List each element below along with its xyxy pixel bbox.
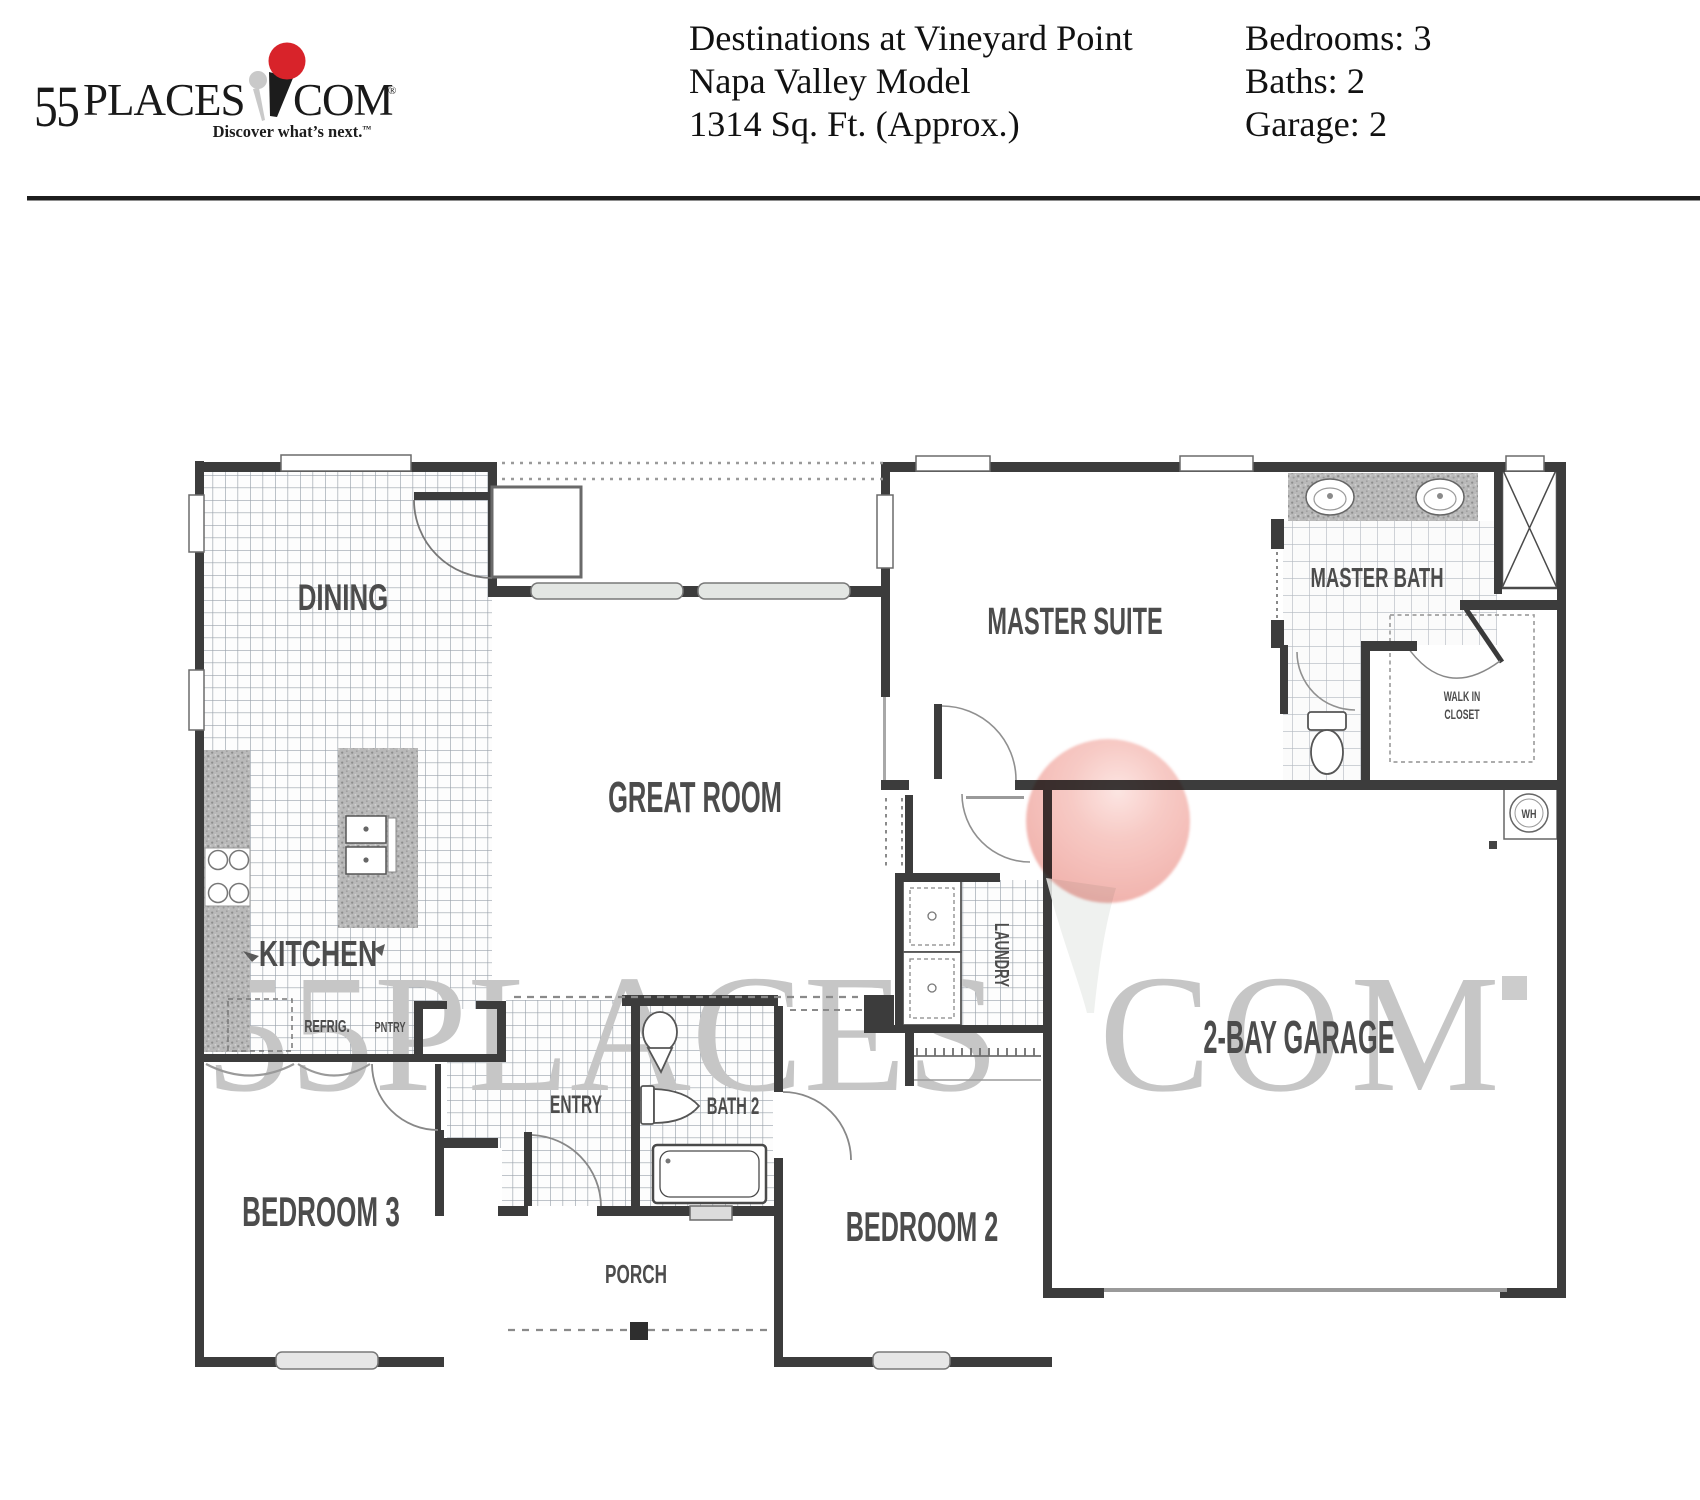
svg-text:Baths: 2: Baths: 2 <box>1245 61 1365 101</box>
svg-text:REFRIG.: REFRIG. <box>304 1016 349 1036</box>
svg-text:Destinations at Vineyard Point: Destinations at Vineyard Point <box>689 18 1133 58</box>
svg-text:ENTRY: ENTRY <box>550 1091 602 1119</box>
svg-text:COM: COM <box>293 75 393 125</box>
svg-text:MASTER BATH: MASTER BATH <box>1310 563 1443 594</box>
svg-text:KITCHEN: KITCHEN <box>259 933 377 974</box>
svg-text:GREAT ROOM: GREAT ROOM <box>608 772 782 822</box>
svg-text:PLACES: PLACES <box>83 75 245 125</box>
svg-text:1314 Sq. Ft. (Approx.): 1314 Sq. Ft. (Approx.) <box>689 104 1020 144</box>
svg-text:DINING: DINING <box>298 576 389 618</box>
svg-text:WALK IN: WALK IN <box>1444 689 1481 705</box>
svg-text:Garage: 2: Garage: 2 <box>1245 104 1387 144</box>
svg-text:Napa Valley Model: Napa Valley Model <box>689 61 971 101</box>
svg-text:Discover what’s next.™: Discover what’s next.™ <box>213 122 372 141</box>
svg-text:CLOSET: CLOSET <box>1444 707 1479 723</box>
svg-text:PORCH: PORCH <box>605 1259 667 1289</box>
svg-text:Bedrooms: 3: Bedrooms: 3 <box>1245 18 1432 58</box>
svg-text:WH: WH <box>1522 808 1537 822</box>
svg-text:BEDROOM 3: BEDROOM 3 <box>242 1189 400 1236</box>
svg-text:MASTER SUITE: MASTER SUITE <box>987 599 1162 642</box>
svg-text:BATH 2: BATH 2 <box>707 1094 760 1120</box>
svg-text:BEDROOM 2: BEDROOM 2 <box>846 1205 999 1251</box>
svg-text:2-BAY GARAGE: 2-BAY GARAGE <box>1203 1011 1394 1063</box>
svg-text:®: ® <box>388 85 396 97</box>
svg-text:PNTRY: PNTRY <box>374 1019 406 1036</box>
svg-text:LAUNDRY: LAUNDRY <box>990 923 1012 988</box>
svg-text:55: 55 <box>34 76 79 139</box>
